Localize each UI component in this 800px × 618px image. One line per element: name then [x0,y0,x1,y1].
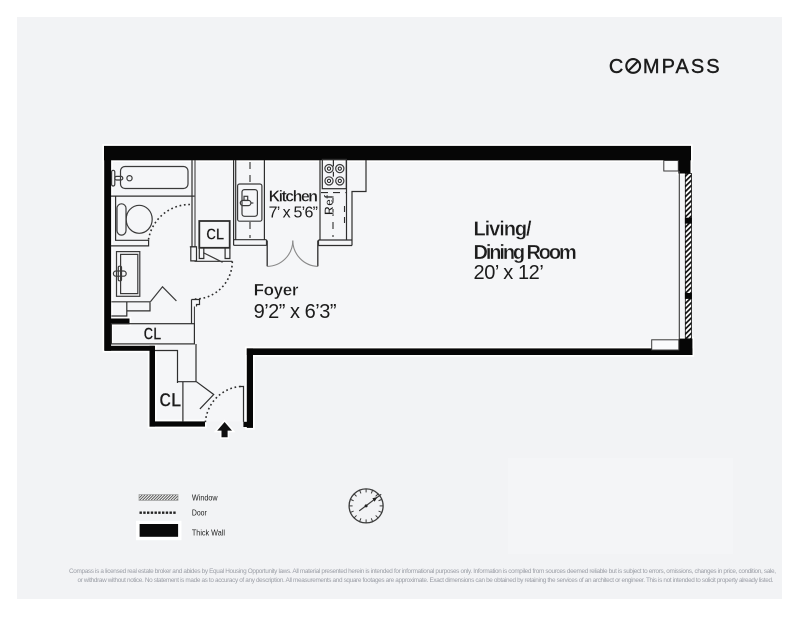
svg-text:Thick Wall: Thick Wall [192,528,225,538]
svg-text:Compass is a licensed real est: Compass is a licensed real estate broker… [69,568,776,575]
svg-text:Ref: Ref [322,194,336,215]
svg-text:C: C [609,56,625,78]
svg-text:Living/: Living/ [474,219,533,241]
svg-text:CL: CL [144,325,162,344]
svg-text:CL: CL [206,227,224,244]
svg-text:Kitchen: Kitchen [269,188,318,205]
svg-text:Dining Room: Dining Room [474,242,577,264]
svg-text:CL: CL [159,389,181,410]
svg-text:Foyer: Foyer [254,280,299,299]
svg-text:7’ x 5’6”: 7’ x 5’6” [269,204,318,221]
svg-text:Door: Door [192,508,207,518]
svg-text:MPASS: MPASS [643,56,722,78]
svg-text:9’2” x 6’3”: 9’2” x 6’3” [254,301,337,323]
svg-text:or withdraw without notice. No: or withdraw without notice. No statement… [78,577,774,584]
svg-text:20’ x 12’: 20’ x 12’ [474,262,544,284]
svg-text:Window: Window [192,493,218,503]
